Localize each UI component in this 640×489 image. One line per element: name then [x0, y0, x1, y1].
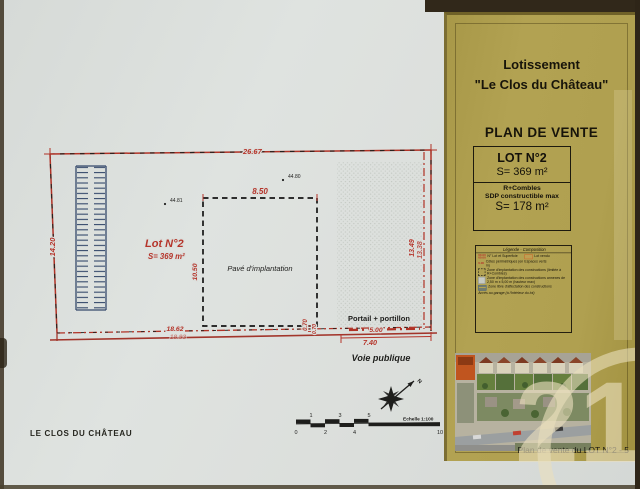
photo-edge-right: [635, 0, 640, 489]
dim-portal-width-label: 5.00: [369, 327, 382, 334]
portal-segment: [349, 329, 420, 330]
lot-box-divider: [474, 182, 570, 183]
legend-item-label: Zone d'implantation des constructions an…: [487, 277, 571, 284]
lot-number: LOT N°2: [474, 151, 570, 165]
scale-bar: 0 1 2 3 4 5 10 Echelle 1:100: [294, 413, 443, 436]
legend-lot-number-swatch: 00.0000.00: [478, 254, 486, 260]
spot-level-marker: [282, 179, 284, 181]
legend-annex-zone-swatch: [478, 277, 485, 284]
photographed-sale-plan: 26.67 14.20 13.49 13.38 8.50 10.50 18.62…: [0, 0, 640, 489]
scale-label: Echelle 1:100: [403, 417, 434, 423]
pave-implantation-label: Pavé d'implantation: [227, 264, 292, 273]
legend-item-label: Accès au garage (à l'intérieur du lot): [478, 292, 570, 296]
dim-pave-left-label: 10.50: [192, 263, 199, 280]
dim-pave-top-label: 8.50: [252, 187, 268, 196]
spot-level-2: 44.80: [288, 174, 301, 180]
lot-sdp-area: S= 178 m²: [474, 201, 570, 213]
lot-area-label: S= 369 m²: [148, 252, 185, 261]
portal-label: Portail + portillon: [348, 314, 410, 323]
photo-edge-bottom: [0, 485, 640, 489]
legend-title: Légende - Composition: [476, 246, 572, 253]
legend-dim-swatch: 0.00: [478, 263, 484, 266]
photo-edge-top: [425, 0, 640, 12]
dim-right-inner-label: 13.49: [409, 239, 416, 257]
sale-info-panel: Lotissement "Le Clos du Château" PLAN DE…: [444, 12, 636, 461]
legend-building-zone-swatch: [478, 269, 485, 276]
dim-gap-b-label: 0.70: [312, 324, 318, 334]
development-name: "Le Clos du Château": [447, 77, 636, 92]
scale-tick-5: 5: [367, 413, 370, 419]
north-compass-icon: N: [378, 378, 423, 412]
building-zone-outline: [203, 198, 317, 326]
spot-level-marker: [164, 203, 166, 205]
dim-right-outer-label: 13.38: [417, 241, 424, 259]
public-road-label: Voie publique: [352, 353, 411, 363]
lot-sdp-label: SDP constructible max: [474, 193, 570, 200]
scale-tick-2: 2: [324, 430, 327, 436]
dim-bottom-right-label: 7.40: [363, 338, 377, 347]
dim-left-label: 14.20: [48, 237, 57, 257]
dim-bottom-b-label: 18.93: [170, 334, 187, 341]
page-caption: Plan de vente du LOT N°2 - 5: [457, 445, 631, 455]
spot-level-1: 44.81: [170, 198, 183, 204]
scale-tick-3: 3: [338, 413, 341, 419]
lot-area: S= 369 m²: [474, 166, 570, 178]
legend-item-label: Zone libre d'affectation des constructio…: [488, 285, 570, 289]
legend-item-label: Espaces verts: [524, 260, 570, 264]
legend-box: Légende - Composition 00.0000.00 N° Lot …: [475, 245, 572, 333]
dim-bottom-a-label: 18.62: [166, 326, 183, 333]
legend-item-label: N° Lot et Superficie: [487, 255, 524, 259]
site-overview-image: [455, 353, 591, 451]
lot-summary-box: LOT N°2 S= 369 m² R+Combles SDP construc…: [473, 146, 571, 231]
scale-tick-10: 10: [437, 430, 443, 436]
legend-free-zone-swatch: [478, 285, 486, 291]
legend-sold-lot-swatch: [524, 254, 532, 259]
scale-tick-0: 0: [294, 430, 297, 436]
development-title: Lotissement: [447, 57, 636, 72]
site-name-footer: LE CLOS DU CHÂTEAU: [30, 429, 132, 438]
retaining-wall-symbol: [76, 166, 106, 310]
lot-number-label: Lot N°2: [145, 238, 184, 250]
scale-tick-4: 4: [353, 430, 356, 436]
legend-item-label: Lot vendu: [534, 255, 570, 259]
scale-tick-1: 1: [309, 413, 312, 419]
legend-item-label: Zone d'implantation des constructions (l…: [487, 269, 571, 276]
north-letter: N: [416, 378, 423, 385]
dim-gap-a-label: 0.70: [303, 319, 309, 331]
photo-edge-artifact: [0, 338, 7, 368]
plan-de-vente-heading: PLAN DE VENTE: [447, 125, 636, 140]
dim-top-label: 26.67: [242, 147, 263, 156]
legend-item-label: Côtes périmétriques (en m): [486, 260, 525, 267]
lot-floors: R+Combles: [474, 185, 570, 192]
photo-edge-left: [0, 0, 4, 489]
